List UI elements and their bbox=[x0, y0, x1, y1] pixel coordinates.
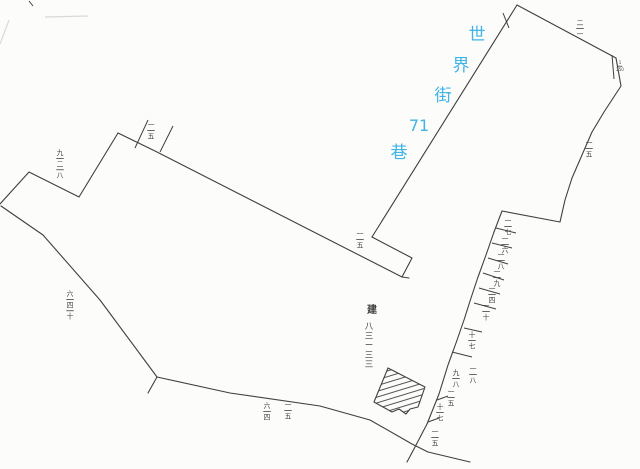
lot-number-label: 一 bbox=[285, 401, 292, 409]
lot-number-label: 十 bbox=[483, 312, 490, 321]
corner-mark bbox=[29, 1, 33, 6]
lot-number-label: 六 bbox=[67, 289, 74, 298]
lot-number-label: 九 bbox=[57, 148, 64, 157]
lot-division-line bbox=[452, 352, 472, 357]
lot-number-label: 八 bbox=[470, 376, 477, 384]
lot-number-label: 一 bbox=[448, 388, 455, 396]
survey-tick bbox=[612, 55, 614, 79]
survey-tick bbox=[135, 120, 148, 148]
lot-number-label: 250 bbox=[616, 67, 624, 72]
lot-number-label: 五 bbox=[432, 439, 439, 447]
street-name-label: 巷 bbox=[391, 143, 408, 163]
building-lot-number-char: 三 bbox=[365, 351, 374, 361]
street-name-label: 界 bbox=[453, 56, 470, 76]
lot-number-label: 七 bbox=[469, 341, 476, 350]
scan-noise-mark bbox=[0, 20, 9, 44]
street-name-label: 世 bbox=[469, 25, 486, 45]
lot-number-label: 四 bbox=[67, 301, 74, 309]
lot-number-label: 五 bbox=[448, 399, 455, 407]
street-name-label: 街 bbox=[435, 86, 452, 106]
lot-number-label: 八 bbox=[57, 172, 64, 180]
lot-number-label: 一 bbox=[498, 251, 505, 259]
lot-number-label: 一 bbox=[470, 365, 477, 373]
lot-number-label: 五 bbox=[586, 150, 593, 158]
lot-number-label: 一 bbox=[489, 285, 496, 293]
lot-number-label: 四 bbox=[489, 296, 496, 304]
lot-number-label: 九 bbox=[453, 368, 460, 377]
lot-number-label: 一 bbox=[577, 30, 584, 38]
lot-number-label: 二 bbox=[57, 160, 64, 168]
street-name-label: 71 bbox=[409, 116, 429, 135]
lot-number-label: 四 bbox=[264, 413, 271, 421]
survey-tick bbox=[437, 396, 448, 400]
lot-number-label: 五 bbox=[148, 132, 155, 140]
lot-number-label: 十 bbox=[469, 330, 476, 339]
lot-number-label: 十 bbox=[437, 402, 444, 411]
lot-number-label: 一 bbox=[505, 217, 512, 225]
building-lot-number-char: 三 bbox=[365, 332, 374, 342]
boundary-right-parcel-west-boundary bbox=[407, 211, 502, 462]
boundary-lower-left-boundary bbox=[1, 206, 157, 377]
lot-number-label: 一 bbox=[357, 230, 364, 238]
cadastral-map-svg: 一五九二八六四十六四一五一五二一一五1250一七一六一八一九一四一十十七一八九八… bbox=[0, 0, 640, 469]
lot-number-label: 1 bbox=[619, 60, 622, 65]
lot-number-label: 二 bbox=[577, 19, 584, 27]
lot-number-label: 一 bbox=[148, 121, 155, 129]
boundary-long-top-boundary bbox=[118, 133, 402, 277]
lot-number-label: 十 bbox=[67, 312, 74, 321]
lot-number-label: 五 bbox=[357, 241, 364, 249]
lot-number-label: 一 bbox=[502, 235, 509, 243]
building-lot-number-char: ー bbox=[365, 341, 374, 351]
lot-number-label: 六 bbox=[264, 401, 271, 410]
survey-tick bbox=[160, 126, 173, 152]
scan-noise-mark bbox=[45, 16, 88, 17]
lot-number-label: 五 bbox=[285, 412, 292, 420]
lot-number-label: 一 bbox=[586, 139, 593, 147]
building-footprint bbox=[374, 368, 425, 414]
lot-number-label: 一 bbox=[494, 268, 501, 276]
cadastral-map: 一五九二八六四十六四一五一五二一一五1250一七一六一八一九一四一十十七一八九八… bbox=[0, 0, 640, 469]
boundary-road-left-edge bbox=[372, 5, 517, 237]
building-lot-number-char: 三 bbox=[365, 360, 374, 370]
building-label-prefix: 建 bbox=[366, 303, 378, 316]
building-lot-number-char: 八 bbox=[365, 322, 374, 332]
boundary-upper-left-zigzag bbox=[0, 133, 118, 204]
boundary-bottom-left-spur bbox=[148, 377, 157, 393]
lot-number-label: 七 bbox=[437, 413, 444, 422]
lot-number-label: 一 bbox=[432, 428, 439, 436]
lot-number-label: 一 bbox=[483, 302, 490, 310]
boundary-road-apex-right-edge bbox=[517, 5, 616, 58]
